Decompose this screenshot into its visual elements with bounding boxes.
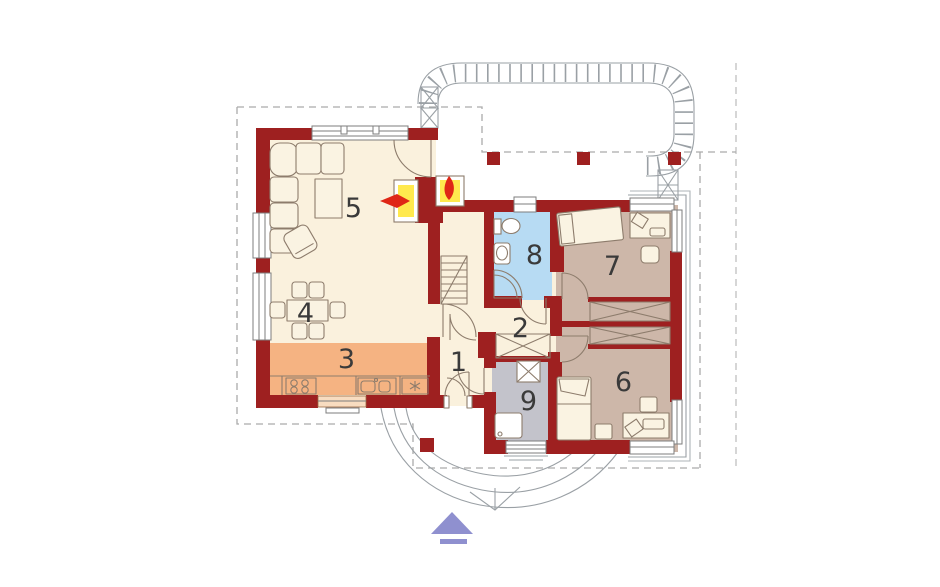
path-steps	[470, 487, 520, 510]
door-jamb	[467, 396, 472, 408]
dining-left-window	[253, 273, 271, 340]
toilet-icon	[494, 219, 520, 235]
room-label-6: 6	[615, 367, 631, 398]
room-label-1: 1	[450, 347, 466, 378]
living-top-window	[312, 126, 408, 140]
pergola-outer-edge	[418, 63, 694, 176]
bedroom6-bottom-window	[630, 441, 674, 454]
floor-plan-canvas: 1 2 3 4 5 6 7 8 9	[0, 0, 940, 587]
entrance-arrow-icon	[431, 512, 473, 544]
room-label-8: 8	[526, 240, 542, 271]
bedroom6-right-window	[672, 400, 682, 444]
washbasin-icon	[494, 243, 510, 264]
living-left-window	[253, 213, 271, 258]
room-label-7: 7	[604, 251, 620, 282]
chair	[309, 282, 324, 298]
room-label-3: 3	[338, 344, 354, 375]
chair	[270, 302, 285, 318]
pergola-inner-edge	[438, 83, 674, 156]
room-label-2: 2	[512, 313, 528, 344]
desk-item	[643, 419, 664, 429]
room-label-4: 4	[297, 298, 313, 329]
post	[577, 152, 590, 165]
bedroom7-top-window	[630, 198, 674, 211]
nightstand	[640, 397, 657, 412]
trellis-post-left	[421, 87, 438, 128]
chair	[292, 282, 307, 298]
room-label-5: 5	[345, 193, 361, 224]
door-jamb	[444, 396, 449, 408]
bed	[557, 207, 624, 247]
post	[668, 152, 681, 165]
stool	[641, 246, 659, 263]
nightstand	[595, 424, 612, 439]
bed	[557, 377, 591, 440]
post	[487, 152, 500, 165]
post	[420, 438, 434, 452]
vent-box-icon	[517, 361, 540, 382]
room-label-9: 9	[520, 386, 536, 417]
bedroom7-right-window	[672, 210, 682, 252]
floor-plan-drawing: 1 2 3 4 5 6 7 8 9	[0, 0, 940, 587]
coffee-table	[315, 179, 342, 218]
utility-window	[504, 441, 548, 460]
boiler-icon	[495, 413, 522, 438]
kitchen-window	[318, 396, 366, 413]
bathroom-window	[514, 197, 536, 212]
chair	[330, 302, 345, 318]
desk-item	[650, 228, 665, 236]
